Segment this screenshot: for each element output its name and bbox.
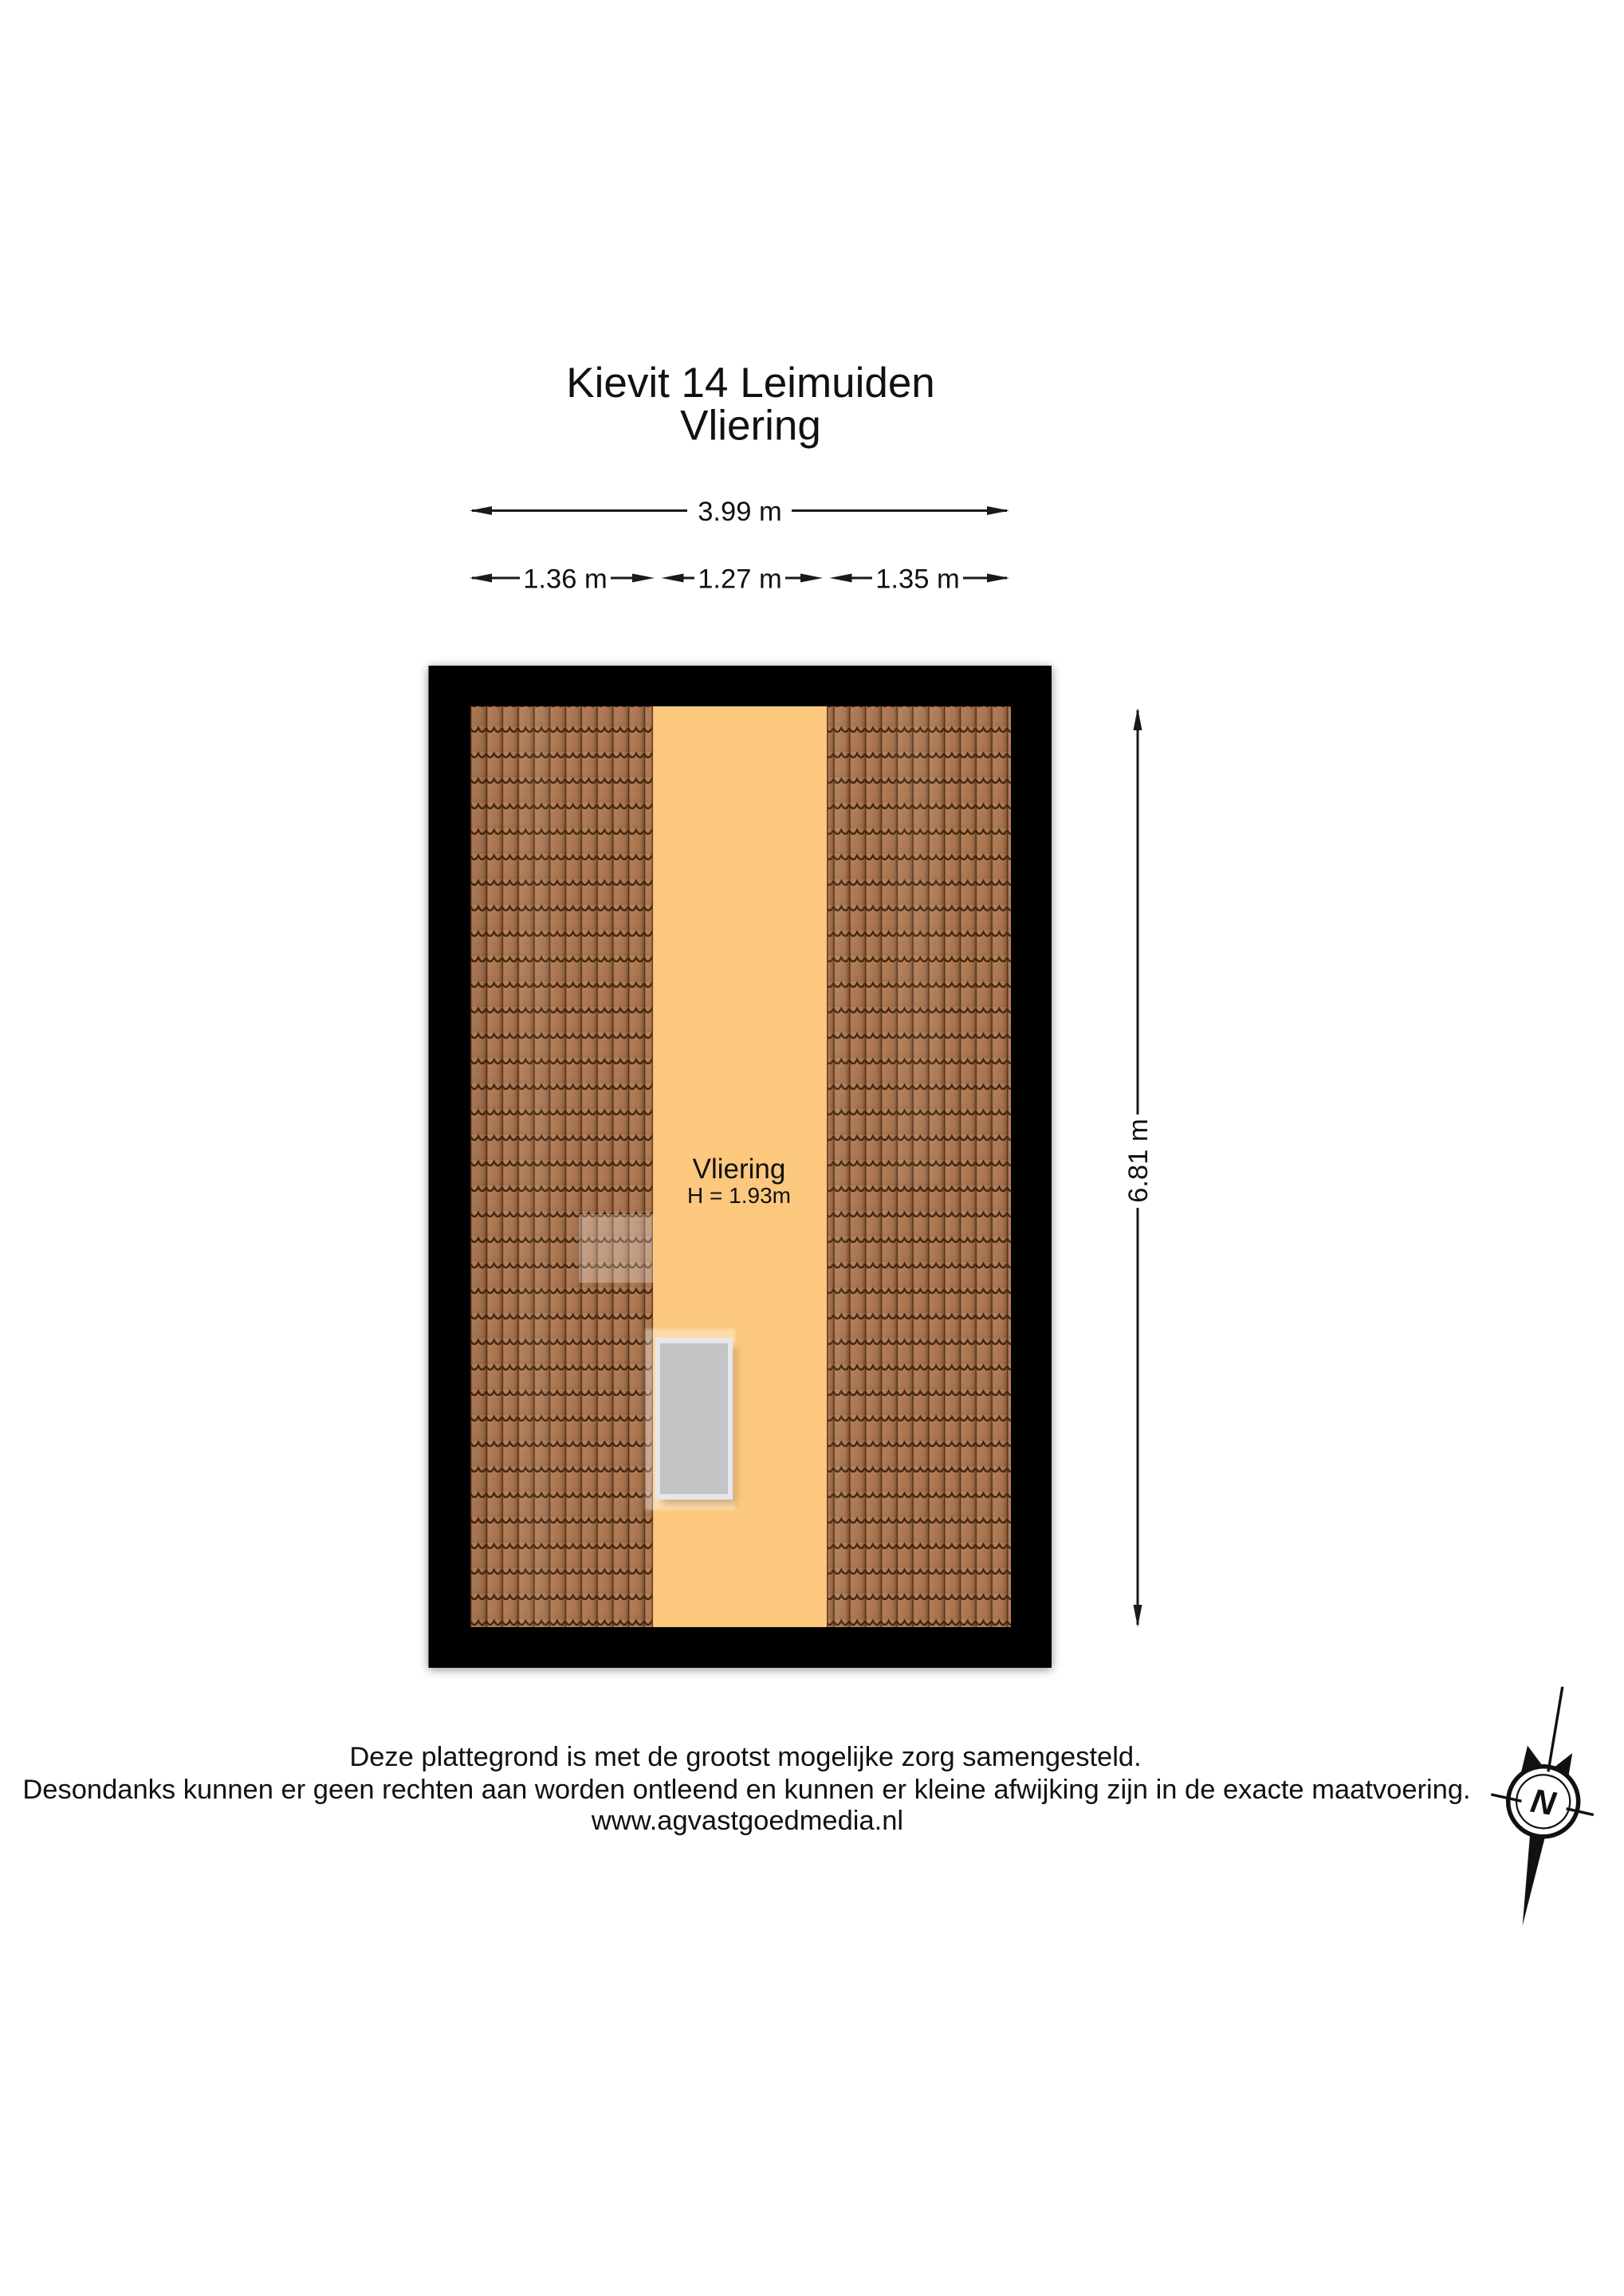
svg-text:www.agvastgoedmedia.nl: www.agvastgoedmedia.nl <box>591 1806 903 1836</box>
svg-text:Vliering: Vliering <box>693 1154 786 1185</box>
svg-text:1.27 m: 1.27 m <box>698 564 781 595</box>
svg-text:1.35 m: 1.35 m <box>875 564 959 595</box>
svg-text:6.81 m: 6.81 m <box>1123 1119 1154 1202</box>
svg-text:H = 1.93m: H = 1.93m <box>687 1183 791 1208</box>
svg-text:Kievit 14 Leimuiden: Kievit 14 Leimuiden <box>566 360 935 407</box>
svg-text:Desondanks kunnen er geen rech: Desondanks kunnen er geen rechten aan wo… <box>22 1775 1470 1805</box>
svg-text:Deze plattegrond is met de gro: Deze plattegrond is met de grootst mogel… <box>349 1742 1141 1772</box>
svg-text:1.36 m: 1.36 m <box>523 564 607 595</box>
svg-text:3.99 m: 3.99 m <box>698 497 781 527</box>
svg-text:Vliering: Vliering <box>680 403 821 450</box>
